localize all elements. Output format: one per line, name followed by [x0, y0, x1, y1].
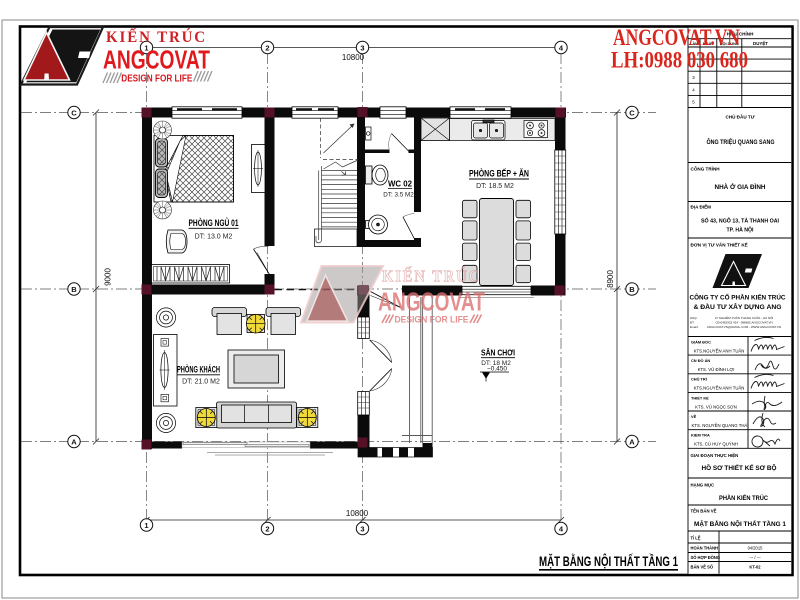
svg-text:2: 2 [265, 43, 269, 52]
svg-text:ĐT:: ĐT: [690, 321, 695, 325]
svg-text:PHÒNG KHÁCH: PHÒNG KHÁCH [177, 364, 220, 375]
svg-text:WC 02: WC 02 [388, 180, 413, 189]
svg-text:KIỂM TRA: KIỂM TRA [691, 433, 710, 438]
svg-text:DT: 21.0 M2: DT: 21.0 M2 [182, 379, 220, 386]
svg-text:ANGCOVAT: ANGCOVAT [378, 289, 485, 317]
svg-text:SỐ HỢP ĐỒNG: SỐ HỢP ĐỒNG [691, 555, 721, 560]
svg-text:3: 3 [360, 43, 364, 52]
svg-text:TỈ LỆ: TỈ LỆ [691, 536, 701, 541]
svg-text:C: C [71, 108, 77, 117]
svg-text:A: A [71, 437, 77, 446]
svg-text:ĐƠN VỊ TƯ VẤN THIẾT KẾ: ĐƠN VỊ TƯ VẤN THIẾT KẾ [691, 242, 748, 248]
svg-text:KT-02: KT-02 [749, 565, 761, 570]
svg-text:DT: 18.5 M2: DT: 18.5 M2 [476, 183, 514, 190]
svg-text:1: 1 [144, 521, 148, 530]
svg-text:THIẾT KẾ: THIẾT KẾ [691, 395, 709, 400]
svg-text:HỒ SƠ THIẾT KẾ SƠ BỘ: HỒ SƠ THIẾT KẾ SƠ BỘ [702, 464, 777, 472]
svg-text:10800: 10800 [342, 53, 365, 62]
svg-text:KIẾN TRÚC: KIẾN TRÚC [382, 267, 481, 286]
svg-text:SỐ 43, NGÕ 13, TẢ THANH OAI: SỐ 43, NGÕ 13, TẢ THANH OAI [701, 218, 780, 225]
svg-text:LH:0988 030 680: LH:0988 030 680 [611, 48, 748, 73]
svg-text:ĐỊA ĐIỂM: ĐỊA ĐIỂM [691, 204, 712, 210]
svg-text:KIẾN TRÚC: KIẾN TRÚC [106, 27, 207, 46]
svg-text:CĐ:0462923.414 - 098655.ANGCOV: CĐ:0462923.414 - 098655.ANGCOVAT.VN [715, 321, 772, 325]
svg-text:8900: 8900 [606, 270, 615, 288]
svg-text:DUYỆT: DUYỆT [753, 41, 768, 46]
svg-text:9000: 9000 [104, 268, 113, 286]
svg-text:ANGCOVAT.VN@GMAIL.COM - WWW.AN: ANGCOVAT.VN@GMAIL.COM - WWW.ANGCOVAT.VN [707, 325, 781, 329]
svg-text:GIAI ĐOẠN THỰC HIỆN: GIAI ĐOẠN THỰC HIỆN [691, 453, 739, 458]
svg-text:KTS.NGUYỄN ANH TUẤN: KTS.NGUYỄN ANH TUẤN [694, 386, 745, 391]
svg-text:PHÒNG NGỦ 01: PHÒNG NGỦ 01 [189, 217, 239, 228]
svg-text:SÂN CHƠI: SÂN CHƠI [481, 347, 515, 358]
svg-text:VẼ: VẼ [691, 414, 697, 419]
svg-text:MẶT BẰNG NỘI THẤT TẦNG 1: MẶT BẰNG NỘI THẤT TẦNG 1 [539, 554, 678, 569]
svg-text:TP. HÀ NỘI: TP. HÀ NỘI [727, 226, 755, 234]
svg-text:KTS.NGUYỄN ANH TUẤN: KTS.NGUYỄN ANH TUẤN [694, 349, 745, 354]
svg-text:ANGCOVAT: ANGCOVAT [103, 45, 210, 75]
svg-text:B: B [629, 285, 635, 294]
svg-text:ÔNG TRIỆU QUANG SANG: ÔNG TRIỆU QUANG SANG [707, 137, 775, 146]
svg-text:TÊN BẢN VẼ: TÊN BẢN VẼ [691, 509, 717, 514]
svg-text:2: 2 [265, 524, 269, 533]
svg-text:PHÒNG BẾP + ĂN: PHÒNG BẾP + ĂN [469, 168, 529, 179]
svg-text:LT NGHIÊM XUÂN THANH XUÂN - HÀ: LT NGHIÊM XUÂN THANH XUÂN - HÀ NỘI [715, 315, 774, 320]
svg-text:04/2015: 04/2015 [748, 546, 764, 551]
svg-text:DESIGN FOR LIFE: DESIGN FOR LIFE [121, 74, 192, 85]
svg-text:KTS. NGUYỄN QUANG THÁI: KTS. NGUYỄN QUANG THÁI [692, 423, 749, 428]
svg-text:ANGCOVAT.VN: ANGCOVAT.VN [613, 25, 740, 50]
svg-text:NHÀ Ở GIA ĐÌNH: NHÀ Ở GIA ĐÌNH [715, 182, 766, 191]
svg-text:CÔNG TRÌNH: CÔNG TRÌNH [691, 165, 721, 172]
svg-text:C: C [629, 108, 635, 117]
svg-text:A: A [629, 437, 635, 446]
svg-text:DESIGN FOR LIFE: DESIGN FOR LIFE [395, 315, 469, 325]
svg-text:CHỦ TRÌ: CHỦ TRÌ [691, 377, 707, 382]
svg-text:DT: 3.5 M2: DT: 3.5 M2 [383, 192, 414, 199]
svg-text:HSQ:: HSQ: [690, 316, 698, 320]
svg-text:BẢN VẼ SỐ: BẢN VẼ SỐ [691, 565, 714, 570]
svg-text:DT: 13.0 M2: DT: 13.0 M2 [195, 234, 233, 241]
svg-text:KTS. VŨ NGỌC SƠN: KTS. VŨ NGỌC SƠN [695, 404, 737, 409]
svg-text:KTS. VŨ ĐÌNH LỢI: KTS. VŨ ĐÌNH LỢI [698, 367, 735, 372]
svg-text:HOÀN THÀNH: HOÀN THÀNH [691, 546, 719, 551]
svg-text:CHỦ ĐẦU TƯ: CHỦ ĐẦU TƯ [725, 114, 754, 120]
svg-text:−0.450: −0.450 [487, 366, 507, 373]
svg-text:--- / ---: --- / --- [749, 555, 761, 560]
svg-text:3: 3 [360, 524, 364, 533]
svg-text:10800: 10800 [346, 509, 369, 518]
svg-text:Email:: Email: [690, 325, 699, 329]
svg-text:GIÁM ĐỐC: GIÁM ĐỐC [691, 340, 711, 345]
svg-text:CN ĐỒ ÁN: CN ĐỒ ÁN [691, 358, 710, 363]
svg-text:HẠNG MỤC: HẠNG MỤC [691, 483, 715, 488]
svg-text:B: B [71, 285, 77, 294]
svg-text:KTS. CÙ HUY QUỲNH: KTS. CÙ HUY QUỲNH [694, 442, 738, 447]
